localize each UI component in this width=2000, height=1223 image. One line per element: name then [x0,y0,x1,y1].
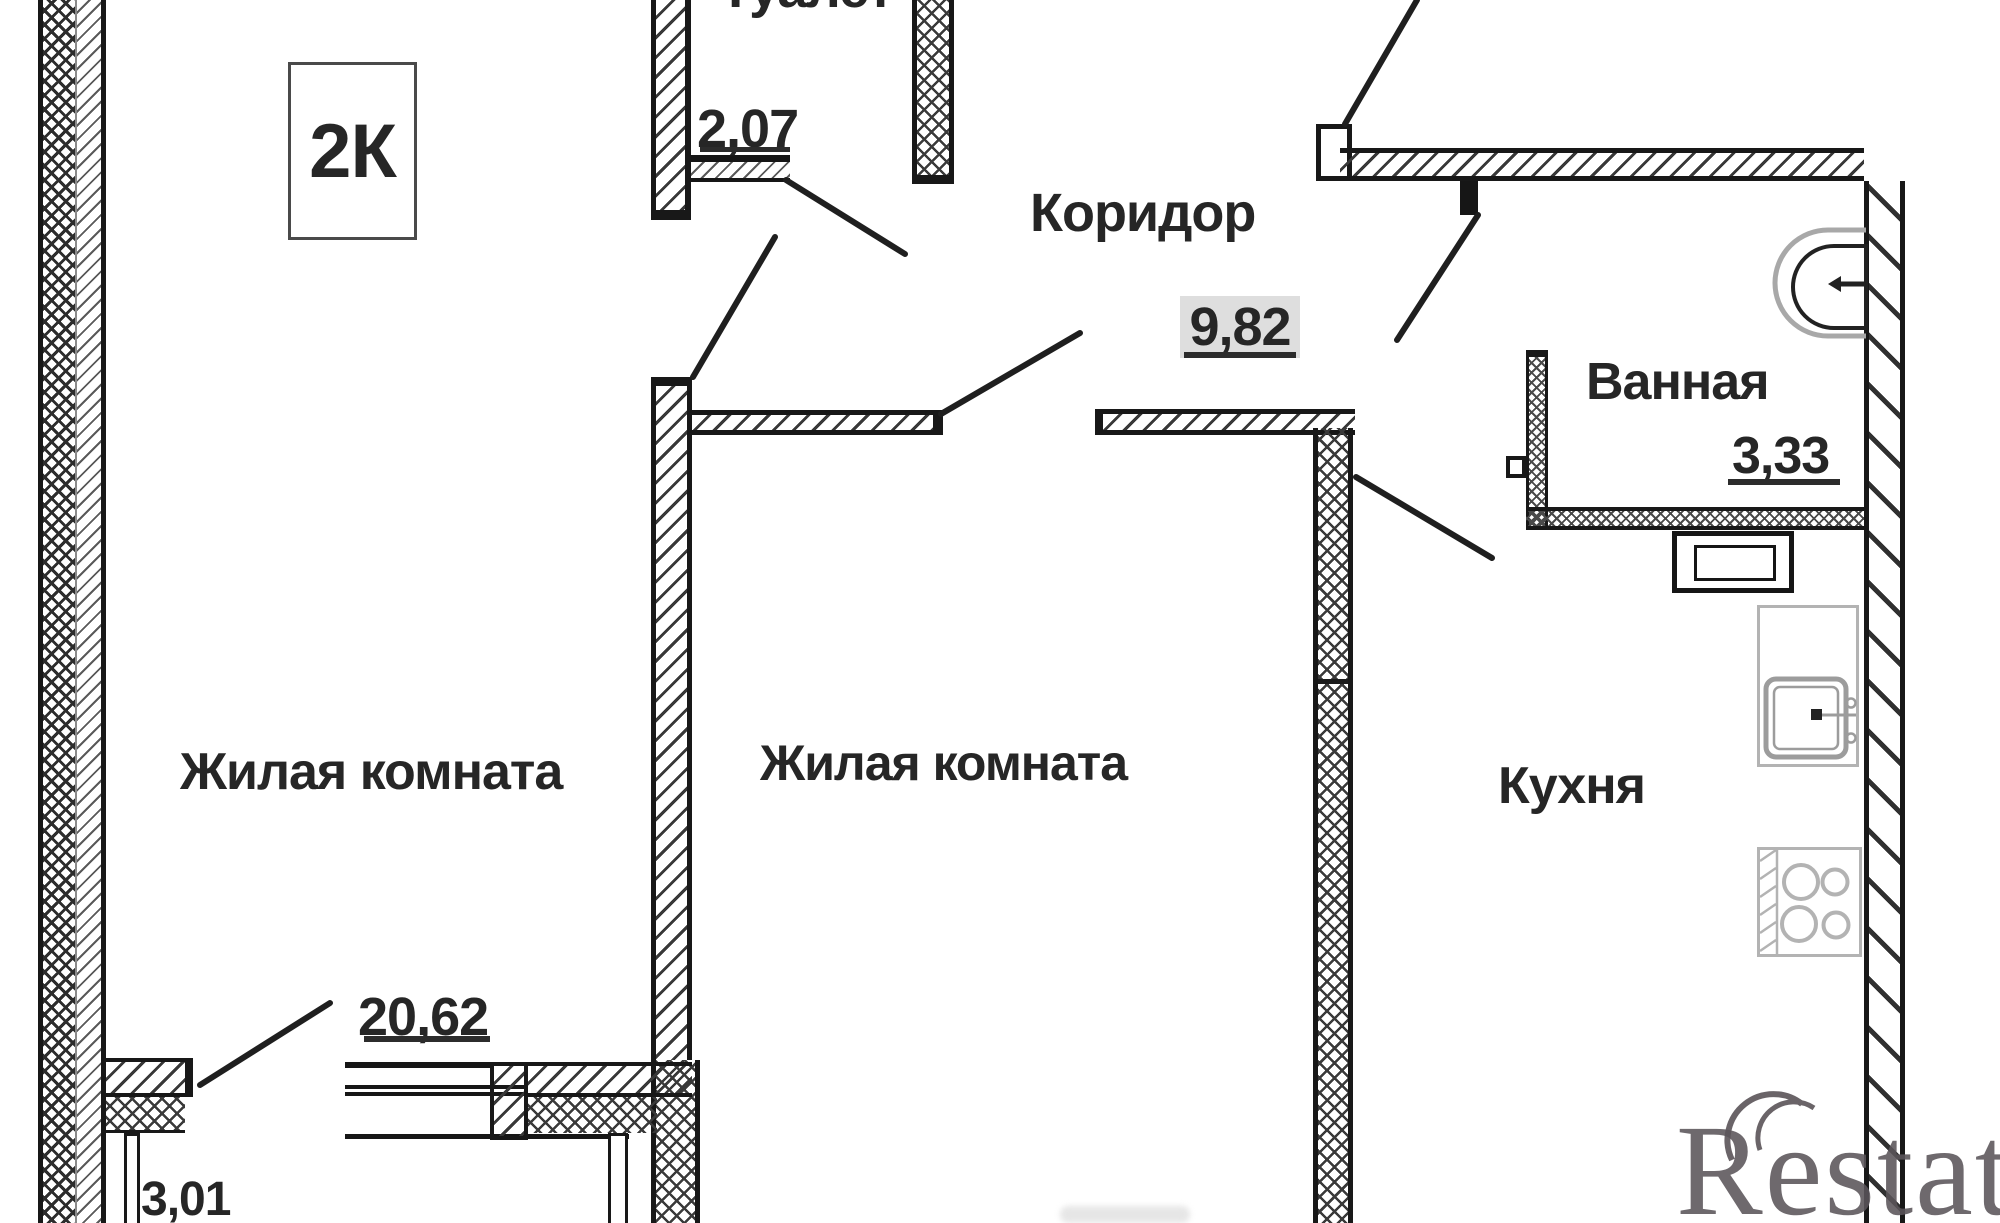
balcony-door-leaf [200,1003,330,1085]
room-label-corridor: Коридор [1030,182,1255,244]
area-underline-toilet [700,147,790,152]
floor-plan: 2К Туалет 2,07 Коридор 9,82 Ванная 3,33 … [0,0,2000,1223]
area-underline-living-left [364,1036,490,1042]
kitchen-sink-icon [1757,605,1859,767]
plan-type-badge: 2К [288,62,417,240]
stove-icon [1757,847,1862,957]
burner-2 [1823,870,1848,895]
area-label-bathroom: 3,33 [1732,426,1829,486]
entry-door-leaf [1345,0,1417,124]
plan-type-label: 2К [309,108,396,195]
watermark-text: Restate [1676,1096,2000,1223]
burner-3 [1782,907,1816,941]
kitchen-sink-outer [1766,679,1846,757]
living-left-door-leaf [693,237,775,377]
toilet-door-leaf [786,180,905,254]
cutoff-text-artifact [1060,1206,1190,1223]
area-label-balcony: 3,01 [141,1172,230,1223]
kitchen-door-leaf [1356,477,1492,558]
area-underline-corridor [1184,352,1296,358]
area-underline-bathroom [1728,479,1840,485]
kitchen-tap [1811,709,1822,720]
room-label-toilet: Туалет [676,0,936,20]
sink-tap-arrow [1828,276,1841,292]
area-label-corridor: 9,82 [1189,296,1290,358]
room-label-living-left: Жилая комната [180,742,562,802]
burner-4 [1824,913,1849,938]
room-label-living-center: Жилая комната [760,734,1127,792]
bathroom-sink-icon [1770,222,1868,344]
center-room-door-leaf [941,333,1080,414]
area-badge-corridor: 9,82 [1180,296,1300,358]
room-label-bathroom: Ванная [1586,352,1769,412]
burner-1 [1784,865,1818,899]
sink-bowl [1793,246,1866,328]
bathroom-door-leaf [1397,215,1478,340]
room-label-kitchen: Кухня [1498,756,1645,816]
